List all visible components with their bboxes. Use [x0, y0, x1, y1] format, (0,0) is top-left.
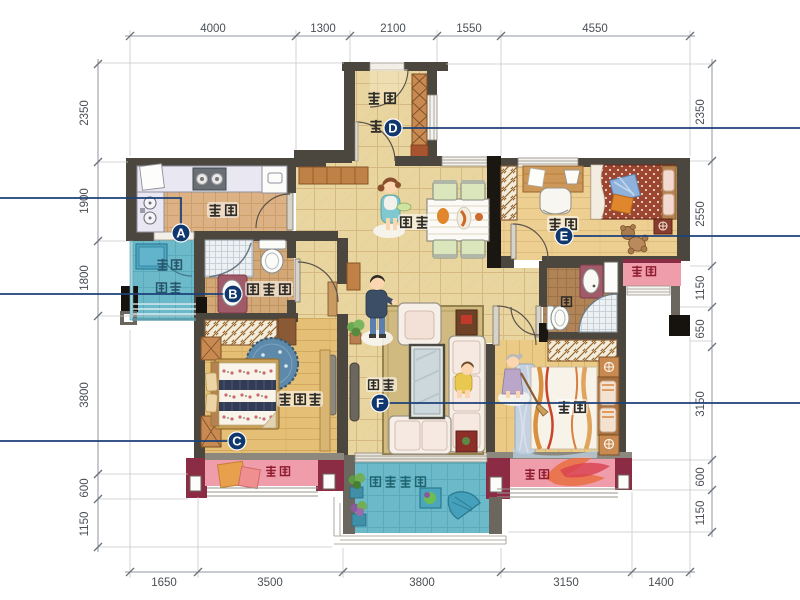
- svg-text:C: C: [232, 434, 242, 449]
- svg-text:4000: 4000: [200, 23, 226, 35]
- svg-text:A: A: [176, 226, 186, 241]
- svg-text:3800: 3800: [79, 382, 91, 408]
- svg-text:3500: 3500: [257, 577, 283, 589]
- svg-text:2100: 2100: [380, 23, 406, 35]
- svg-text:600: 600: [695, 467, 707, 486]
- svg-text:2350: 2350: [695, 99, 707, 125]
- svg-text:650: 650: [695, 319, 707, 338]
- svg-text:1300: 1300: [310, 23, 336, 35]
- svg-text:1150: 1150: [79, 512, 91, 537]
- svg-text:1150: 1150: [695, 276, 707, 301]
- svg-text:1550: 1550: [456, 23, 482, 35]
- svg-text:1150: 1150: [695, 501, 707, 526]
- svg-text:1900: 1900: [79, 188, 91, 214]
- svg-text:1800: 1800: [79, 265, 91, 291]
- svg-text:3150: 3150: [695, 391, 707, 417]
- svg-text:2550: 2550: [695, 201, 707, 227]
- svg-text:1650: 1650: [151, 577, 177, 589]
- svg-text:B: B: [228, 287, 237, 302]
- svg-text:3800: 3800: [409, 577, 435, 589]
- svg-text:4550: 4550: [582, 23, 608, 35]
- svg-text:1400: 1400: [648, 577, 674, 589]
- svg-text:F: F: [376, 396, 384, 411]
- svg-text:2350: 2350: [79, 100, 91, 126]
- svg-text:E: E: [560, 229, 569, 244]
- svg-text:3150: 3150: [553, 577, 579, 589]
- svg-text:D: D: [388, 121, 397, 136]
- svg-text:600: 600: [79, 478, 91, 497]
